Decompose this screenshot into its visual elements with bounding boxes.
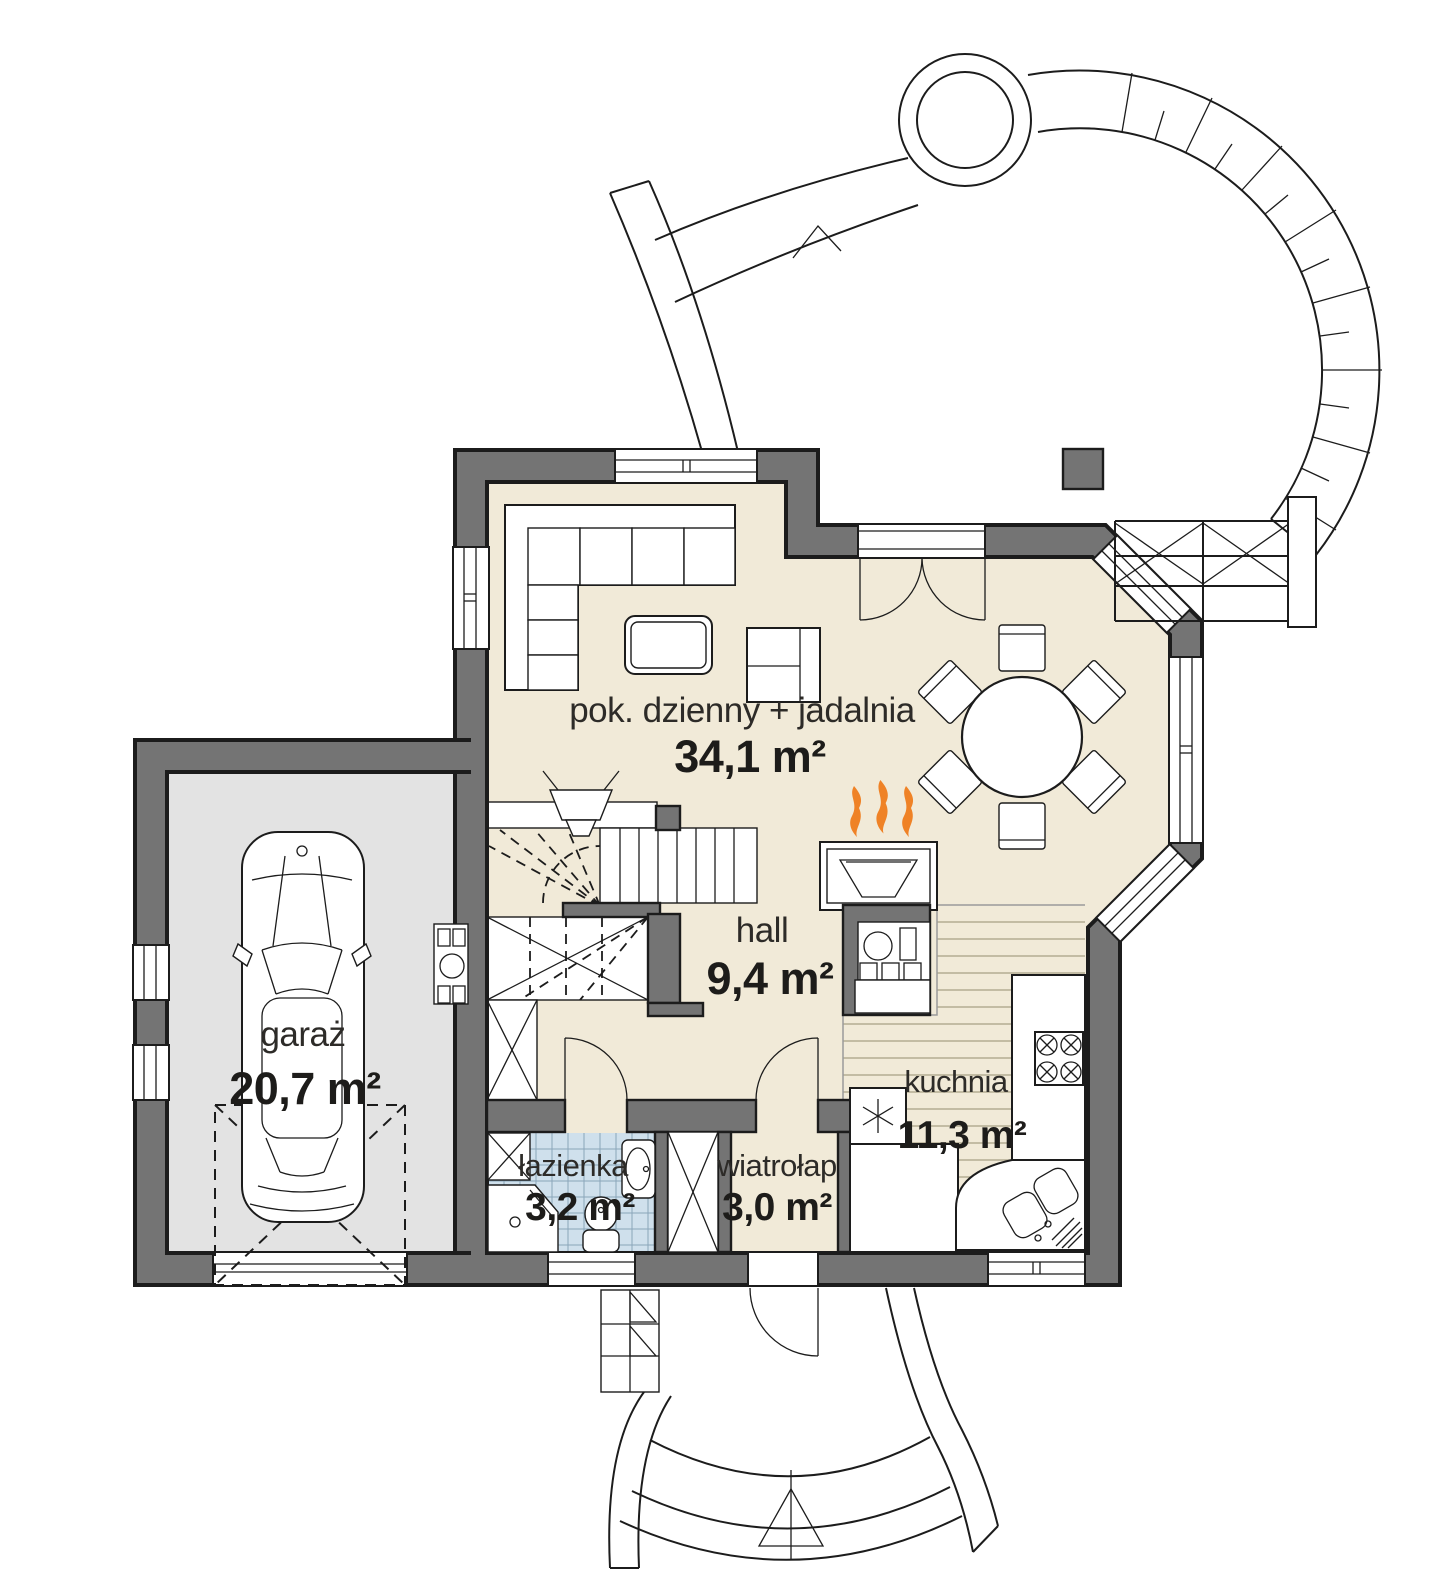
window-garage-west-1 <box>133 945 169 1000</box>
room-label-living-area: 34,1 m² <box>674 731 826 782</box>
window-kitchen-south <box>988 1252 1085 1286</box>
window-living-west <box>453 547 489 649</box>
room-label-vestibule-area: 3,0 m² <box>722 1186 832 1229</box>
dining-chair <box>999 625 1045 671</box>
kitchen-front-counter <box>850 1144 958 1252</box>
room-label-bathroom-area: 3,2 m² <box>525 1186 635 1229</box>
floor-plan-canvas: pok. dzienny + jadalnia 34,1 m² hall 9,4… <box>0 0 1442 1589</box>
wall-heater-panel <box>434 924 468 1004</box>
vestibule-wardrobe <box>668 1132 718 1252</box>
entry-door-opening <box>748 1252 818 1286</box>
boiler-block <box>843 905 930 1015</box>
room-label-bathroom-name: łazienka <box>518 1148 629 1183</box>
entry-door-leaf <box>750 1288 818 1356</box>
floor-plan: pok. dzienny + jadalnia 34,1 m² hall 9,4… <box>0 0 1442 1589</box>
kitchen-sink <box>956 1160 1085 1250</box>
dining-table <box>962 677 1082 797</box>
bay-window-east <box>1169 657 1203 843</box>
light-well <box>601 1290 659 1392</box>
terrace-post <box>1288 497 1316 627</box>
garage-door-opening <box>213 1252 407 1286</box>
room-label-kitchen-area: 11,3 m² <box>898 1114 1027 1157</box>
stair-wall <box>563 903 660 917</box>
understairs-wardrobe <box>487 1000 537 1100</box>
exterior-pergola-arc <box>899 54 1382 555</box>
window-bathroom-south <box>548 1252 635 1286</box>
room-label-garage-area: 20,7 m² <box>229 1063 381 1114</box>
room-label-kitchen-name: kuchnia <box>904 1064 1009 1099</box>
room-label-hall-area: 9,4 m² <box>706 953 834 1004</box>
room-label-hall-name: hall <box>736 911 788 950</box>
window-living-north <box>615 449 757 483</box>
coffee-table <box>625 616 712 674</box>
exterior-curved-paths <box>610 158 918 455</box>
entry-step-arcs <box>620 1437 962 1560</box>
stair-newel-post <box>656 806 680 830</box>
tower-inner-circle <box>917 72 1013 168</box>
dining-chair <box>999 803 1045 849</box>
chimney-block <box>1063 449 1103 489</box>
room-label-living-name: pok. dzienny + jadalnia <box>569 691 916 730</box>
entry-exterior <box>601 1288 998 1568</box>
room-label-vestibule-name: wiatrołap <box>716 1148 837 1183</box>
room-label-garage-name: garaż <box>260 1015 345 1054</box>
stove <box>1035 1032 1083 1085</box>
window-garage-west-2 <box>133 1045 169 1100</box>
